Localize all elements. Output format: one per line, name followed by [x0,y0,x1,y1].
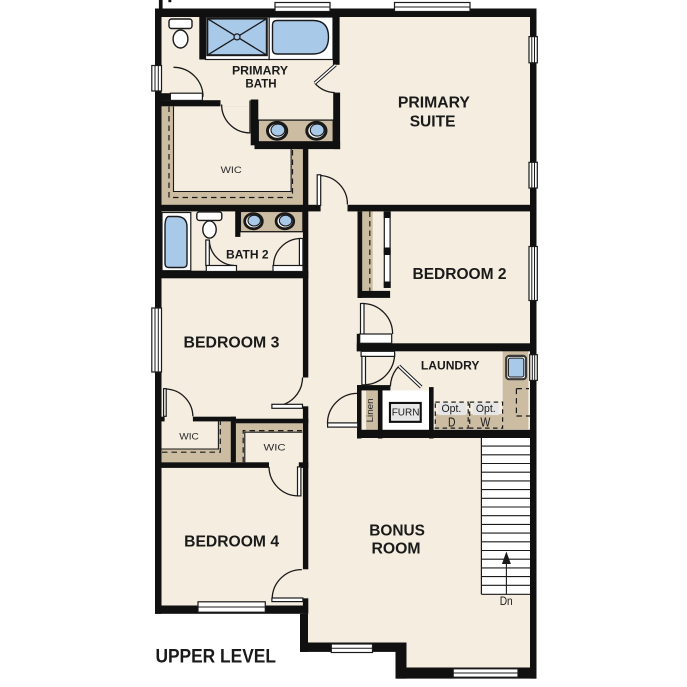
svg-text:UPPER LEVEL: UPPER LEVEL [155,646,276,668]
svg-text:FURN: FURN [392,407,420,419]
svg-text:BONUS: BONUS [369,522,425,539]
svg-text:BATH 2: BATH 2 [226,248,269,262]
svg-text:Dn: Dn [500,596,513,608]
svg-text:WIC: WIC [221,165,242,176]
svg-text:PRIMARY: PRIMARY [232,63,288,77]
svg-text:WIC: WIC [179,432,199,443]
svg-text:W: W [480,416,490,430]
svg-text:SUITE: SUITE [410,114,456,131]
svg-text:ROOM: ROOM [371,540,420,557]
svg-text:BATH: BATH [245,77,276,91]
svg-text:BEDROOM 2: BEDROOM 2 [413,266,507,283]
svg-text:Linen: Linen [365,398,376,422]
svg-text:D: D [448,416,456,430]
svg-text:BEDROOM 4: BEDROOM 4 [184,533,279,550]
svg-text:LAUNDRY: LAUNDRY [421,358,480,372]
svg-text:Opt.: Opt. [476,403,496,415]
svg-text:PRIMARY: PRIMARY [398,95,470,112]
svg-text:Opt.: Opt. [442,403,462,415]
svg-text:WIC: WIC [264,443,286,454]
svg-text:BEDROOM 3: BEDROOM 3 [184,334,280,351]
